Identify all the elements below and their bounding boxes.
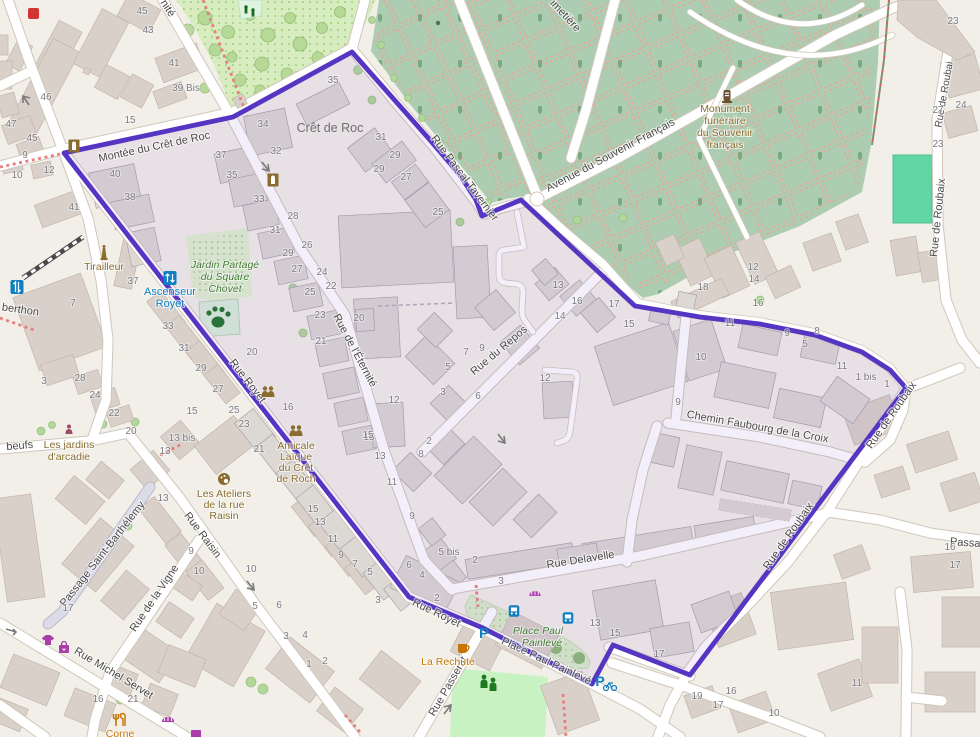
svg-text:16: 16	[944, 542, 956, 553]
svg-text:15: 15	[623, 319, 635, 330]
svg-text:13: 13	[552, 280, 564, 291]
svg-text:La Rechute: La Rechute	[421, 656, 475, 668]
svg-text:Corne: Corne	[106, 728, 135, 737]
svg-text:16: 16	[725, 686, 737, 697]
svg-text:14: 14	[554, 311, 566, 322]
svg-text:9: 9	[784, 328, 790, 339]
svg-text:15: 15	[362, 430, 374, 441]
svg-text:17: 17	[712, 700, 724, 711]
svg-text:3: 3	[41, 376, 47, 387]
svg-text:41: 41	[168, 58, 180, 69]
svg-text:21: 21	[253, 444, 265, 455]
svg-text:31: 31	[269, 225, 281, 236]
svg-text:funéraire: funéraire	[704, 115, 746, 127]
svg-text:7: 7	[70, 298, 76, 309]
svg-text:1 bis: 1 bis	[855, 372, 876, 383]
svg-text:28: 28	[74, 373, 86, 384]
svg-text:7: 7	[463, 347, 469, 358]
svg-text:13: 13	[159, 446, 171, 457]
svg-text:4: 4	[302, 630, 308, 641]
svg-text:23: 23	[932, 139, 944, 150]
svg-text:1: 1	[884, 379, 890, 390]
svg-text:17: 17	[949, 560, 961, 571]
svg-text:11: 11	[837, 361, 848, 372]
svg-text:47: 47	[5, 119, 17, 130]
svg-text:32: 32	[270, 146, 282, 157]
svg-text:16: 16	[571, 296, 583, 307]
svg-text:23: 23	[947, 16, 959, 27]
svg-text:Raisin: Raisin	[209, 510, 238, 522]
svg-text:22: 22	[325, 281, 337, 292]
svg-text:6: 6	[276, 600, 282, 611]
svg-text:16: 16	[92, 694, 104, 705]
svg-text:Chovet: Chovet	[208, 283, 242, 295]
svg-text:25: 25	[228, 405, 240, 416]
svg-text:15: 15	[307, 504, 319, 515]
svg-text:9: 9	[22, 150, 28, 161]
svg-text:8: 8	[814, 326, 820, 337]
svg-text:34: 34	[257, 119, 269, 130]
svg-text:21: 21	[127, 694, 139, 705]
svg-text:45: 45	[26, 133, 38, 144]
svg-text:21: 21	[315, 336, 327, 347]
svg-text:13: 13	[589, 618, 601, 629]
svg-text:29: 29	[282, 248, 294, 259]
svg-text:29: 29	[373, 164, 385, 175]
svg-text:3: 3	[283, 631, 289, 642]
svg-text:4: 4	[419, 570, 425, 581]
svg-text:9: 9	[338, 550, 344, 561]
svg-text:2: 2	[472, 555, 478, 566]
svg-text:12: 12	[747, 262, 759, 273]
svg-text:27: 27	[291, 264, 303, 275]
svg-text:17: 17	[608, 299, 620, 310]
svg-text:11: 11	[328, 534, 339, 545]
svg-text:35: 35	[226, 170, 238, 181]
svg-text:12: 12	[388, 395, 400, 406]
svg-text:Les jardins: Les jardins	[44, 439, 95, 451]
svg-text:du Square: du Square	[201, 271, 250, 283]
svg-text:11: 11	[852, 678, 863, 689]
svg-text:Painlevé: Painlevé	[522, 637, 562, 649]
svg-text:Jardin Partagé: Jardin Partagé	[190, 259, 259, 271]
svg-text:5: 5	[367, 567, 373, 578]
svg-text:6: 6	[406, 560, 412, 571]
svg-text:3: 3	[375, 595, 381, 606]
svg-text:27: 27	[932, 105, 944, 116]
svg-text:45: 45	[136, 6, 148, 17]
svg-text:46: 46	[40, 92, 52, 103]
svg-text:37: 37	[215, 150, 227, 161]
svg-text:20: 20	[246, 347, 258, 358]
svg-text:12: 12	[539, 373, 551, 384]
svg-text:14: 14	[748, 274, 760, 285]
svg-text:17: 17	[62, 603, 74, 614]
svg-text:15: 15	[124, 115, 136, 126]
svg-text:9: 9	[479, 343, 485, 354]
svg-text:7: 7	[352, 559, 358, 570]
svg-text:10: 10	[695, 352, 707, 363]
svg-text:2: 2	[322, 656, 328, 667]
svg-text:13: 13	[157, 493, 169, 504]
svg-text:31: 31	[178, 343, 190, 354]
svg-text:20: 20	[353, 313, 365, 324]
svg-text:5: 5	[252, 601, 258, 612]
svg-text:12: 12	[43, 165, 55, 176]
svg-text:13: 13	[314, 517, 326, 528]
svg-text:Ascenseur: Ascenseur	[144, 286, 196, 298]
svg-text:d'arcadie: d'arcadie	[48, 451, 90, 463]
svg-text:29: 29	[389, 150, 401, 161]
svg-text:24: 24	[955, 100, 967, 111]
svg-text:3: 3	[498, 576, 504, 587]
svg-text:9: 9	[409, 511, 415, 522]
svg-text:9: 9	[675, 397, 681, 408]
svg-text:31: 31	[375, 132, 387, 143]
svg-text:25: 25	[432, 207, 444, 218]
svg-text:6: 6	[475, 391, 481, 402]
svg-text:5: 5	[445, 362, 451, 373]
svg-text:23: 23	[238, 419, 250, 430]
svg-text:P: P	[479, 625, 489, 642]
svg-text:24: 24	[316, 267, 328, 278]
svg-text:39 Bis: 39 Bis	[172, 83, 200, 94]
svg-text:11: 11	[725, 318, 736, 329]
svg-text:40: 40	[109, 169, 121, 180]
svg-text:37: 37	[127, 276, 139, 287]
svg-text:16: 16	[282, 402, 294, 413]
svg-text:13 bis: 13 bis	[169, 433, 196, 444]
svg-text:28: 28	[287, 211, 299, 222]
svg-text:41: 41	[68, 202, 80, 213]
svg-text:22: 22	[108, 408, 120, 419]
svg-text:Monument: Monument	[700, 103, 750, 115]
svg-text:10: 10	[11, 170, 23, 181]
svg-text:2: 2	[434, 593, 440, 604]
svg-text:29: 29	[195, 363, 207, 374]
svg-text:16: 16	[752, 298, 764, 309]
svg-text:10: 10	[193, 566, 205, 577]
svg-text:23: 23	[314, 310, 326, 321]
svg-text:20: 20	[125, 426, 137, 437]
svg-text:du Souvenir: du Souvenir	[697, 127, 754, 139]
svg-text:13: 13	[374, 451, 386, 462]
svg-text:10: 10	[245, 564, 257, 575]
svg-text:18: 18	[697, 282, 709, 293]
svg-text:25: 25	[304, 287, 316, 298]
svg-text:10: 10	[768, 708, 780, 719]
svg-text:27: 27	[400, 172, 412, 183]
svg-text:15: 15	[609, 628, 621, 639]
svg-text:Place Paul: Place Paul	[513, 625, 564, 637]
svg-text:19: 19	[691, 691, 703, 702]
svg-text:5 bis: 5 bis	[438, 547, 459, 558]
svg-text:15: 15	[186, 406, 198, 417]
svg-text:3: 3	[440, 387, 446, 398]
svg-text:beufs: beufs	[6, 439, 34, 453]
svg-text:27: 27	[212, 384, 224, 395]
svg-text:33: 33	[162, 321, 174, 332]
svg-text:français: français	[707, 139, 744, 151]
svg-text:8: 8	[418, 449, 424, 460]
svg-text:Royet: Royet	[156, 298, 185, 310]
svg-text:Crêt de Roc: Crêt de Roc	[297, 121, 364, 135]
svg-text:5: 5	[802, 339, 808, 350]
svg-text:2: 2	[426, 436, 432, 447]
svg-text:de Roch: de Roch	[276, 473, 315, 485]
svg-text:38: 38	[124, 192, 136, 203]
svg-text:1: 1	[306, 659, 312, 670]
svg-text:11: 11	[387, 477, 398, 488]
svg-text:26: 26	[301, 240, 313, 251]
svg-text:43: 43	[142, 25, 154, 36]
svg-text:17: 17	[653, 649, 665, 660]
svg-text:Tirailleur: Tirailleur	[84, 261, 124, 273]
svg-text:24: 24	[89, 390, 101, 401]
svg-text:33: 33	[253, 194, 265, 205]
svg-text:35: 35	[327, 75, 339, 86]
svg-text:9: 9	[188, 546, 194, 557]
